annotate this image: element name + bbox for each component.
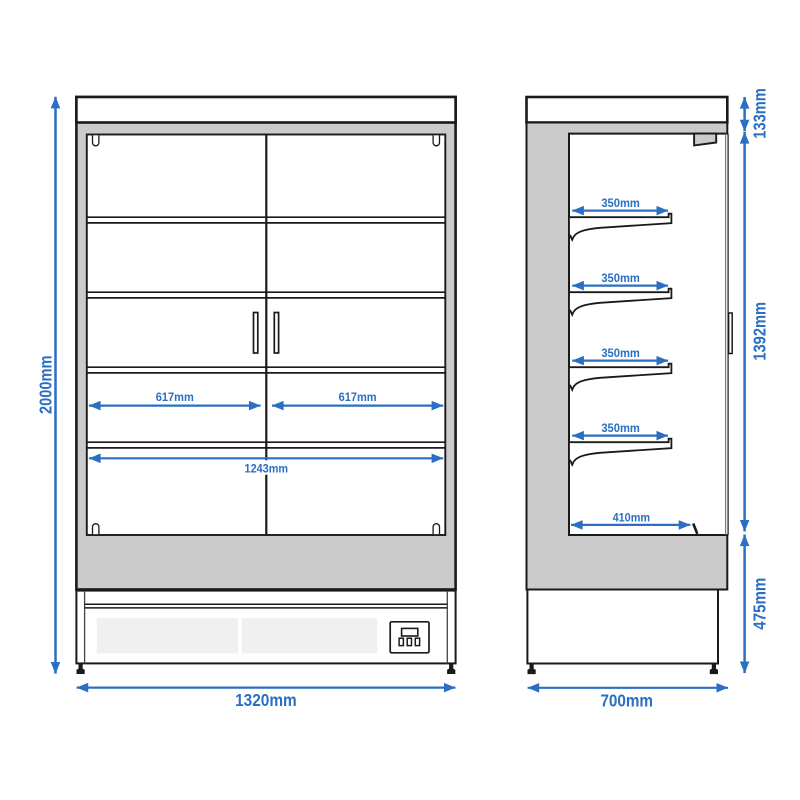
svg-text:350mm: 350mm [601, 346, 640, 360]
svg-text:350mm: 350mm [601, 196, 640, 210]
svg-text:617mm: 617mm [156, 390, 194, 404]
svg-text:350mm: 350mm [601, 421, 640, 435]
svg-text:700mm: 700mm [600, 690, 653, 710]
svg-text:350mm: 350mm [601, 271, 640, 285]
svg-text:133mm: 133mm [749, 88, 769, 138]
svg-text:2000mm: 2000mm [35, 355, 55, 414]
svg-text:1243mm: 1243mm [245, 462, 289, 476]
svg-text:1392mm: 1392mm [749, 302, 769, 361]
svg-text:410mm: 410mm [613, 510, 650, 524]
svg-text:475mm: 475mm [749, 578, 769, 630]
svg-text:617mm: 617mm [339, 390, 377, 404]
svg-text:1320mm: 1320mm [235, 690, 297, 710]
